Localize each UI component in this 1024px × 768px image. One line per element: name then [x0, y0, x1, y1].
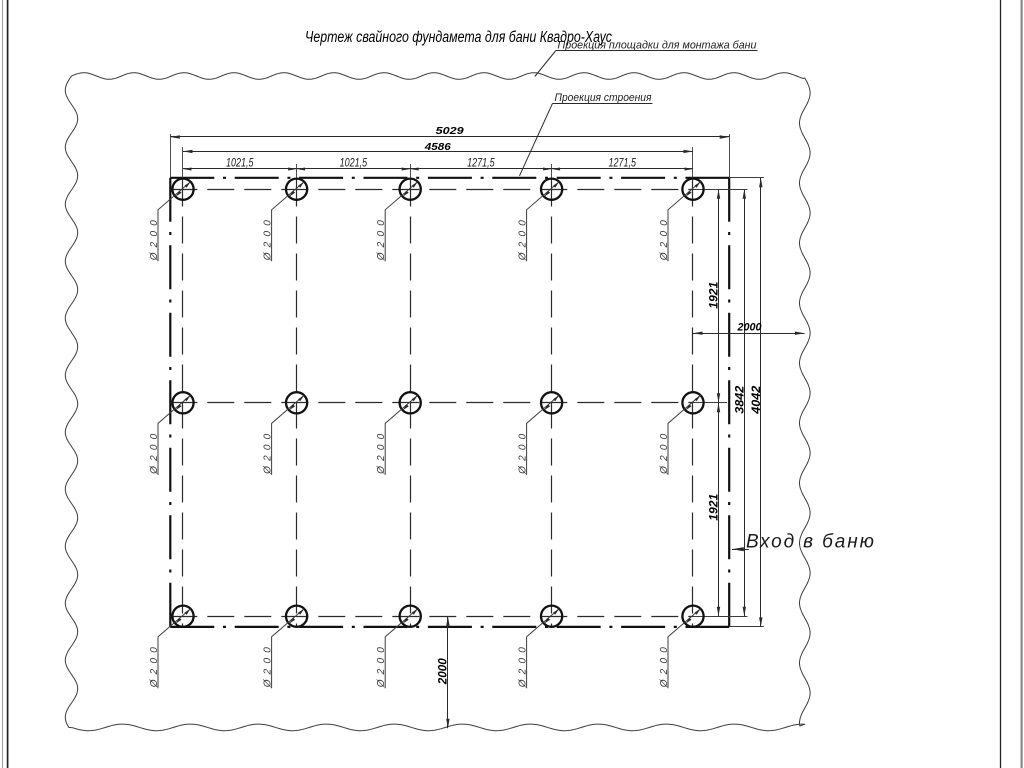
svg-text:Ø200: Ø200: [659, 429, 670, 475]
svg-text:Ø200: Ø200: [517, 215, 528, 261]
svg-text:Вход в баню: Вход в баню: [746, 531, 876, 552]
svg-text:4586: 4586: [424, 141, 451, 153]
svg-text:Ø200: Ø200: [376, 642, 387, 688]
svg-text:Ø200: Ø200: [659, 642, 670, 688]
svg-text:Ø200: Ø200: [262, 642, 273, 688]
svg-text:Ø200: Ø200: [517, 642, 528, 688]
svg-text:1021,5: 1021,5: [340, 158, 368, 170]
svg-text:1271,5: 1271,5: [467, 158, 495, 170]
svg-text:4042: 4042: [749, 385, 763, 414]
svg-text:1271,5: 1271,5: [609, 158, 637, 170]
svg-text:Проекция строения: Проекция строения: [555, 92, 652, 104]
svg-text:5029: 5029: [436, 125, 464, 137]
svg-text:3842: 3842: [732, 385, 746, 413]
svg-text:Ø200: Ø200: [517, 429, 528, 475]
svg-text:Ø200: Ø200: [262, 215, 273, 261]
svg-text:1021,5: 1021,5: [226, 158, 254, 170]
svg-text:2000: 2000: [737, 322, 763, 334]
svg-text:Проекция площадки для монтажа: Проекция площадки для монтажа бани: [558, 40, 757, 52]
svg-text:Ø200: Ø200: [149, 429, 160, 475]
svg-text:2000: 2000: [435, 658, 449, 685]
svg-text:Ø200: Ø200: [149, 642, 160, 688]
svg-text:1921: 1921: [706, 493, 720, 520]
svg-text:Ø200: Ø200: [262, 429, 273, 475]
svg-text:Ø200: Ø200: [376, 429, 387, 475]
svg-text:Ø200: Ø200: [149, 215, 160, 261]
svg-text:1921: 1921: [706, 281, 720, 308]
svg-text:Ø200: Ø200: [659, 215, 670, 261]
svg-text:Ø200: Ø200: [376, 215, 387, 261]
